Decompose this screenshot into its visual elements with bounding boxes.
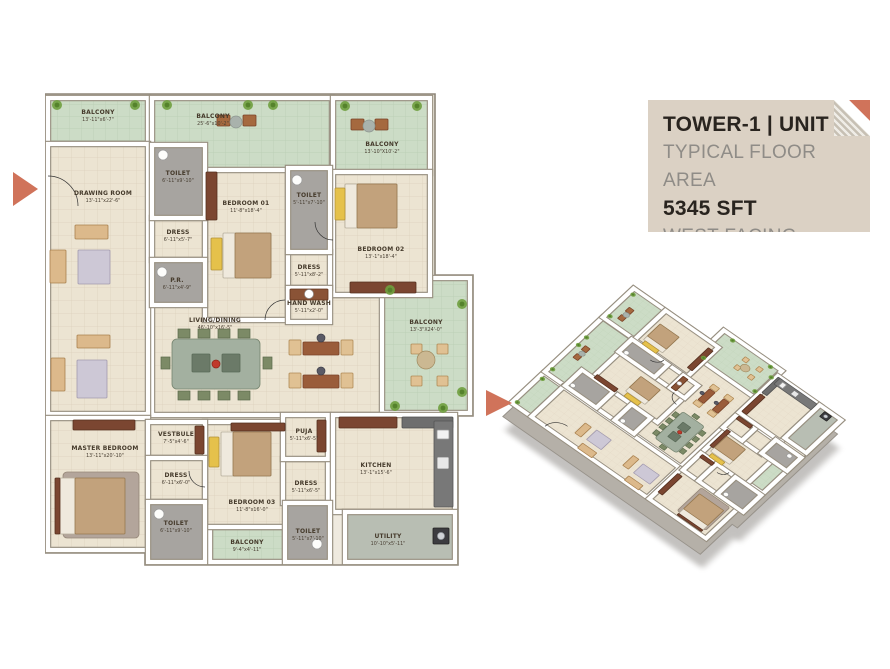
room-label-vestbule: VESTBULE [158,431,194,438]
svg-text:7'-5"x4'-6": 7'-5"x4'-6" [163,439,189,445]
room-label-dress-1: DRESS [166,229,189,236]
panel-subtitle: TYPICAL FLOOR AREA [663,139,870,195]
panel-area: 5345 SFT [663,195,870,223]
floorplan-2d: LIVING/DINING46'-10"x16'-5"BALCONY13'-11… [45,92,475,570]
panel-facing: WEST FACING [663,223,870,251]
room-label-toilet-2: TOILET [297,192,322,199]
room-label-pr: P.R. [170,277,183,284]
room-label-toilet-4: TOILET [296,528,321,535]
room-label-master-bedroom: MASTER BEDROOM [71,445,138,452]
room-label-balcony-5: BALCONY [230,539,264,546]
svg-text:46'-10"x16'-5": 46'-10"x16'-5" [198,325,233,331]
svg-text:5'-11"x7'-10": 5'-11"x7'-10" [292,536,324,542]
room-label-balcony-1: BALCONY [81,109,115,116]
svg-text:5'-11"x2'-0": 5'-11"x2'-0" [295,308,324,314]
svg-text:6'-11"x9'-10": 6'-11"x9'-10" [162,178,194,184]
svg-text:13'-11"x6'-7": 13'-11"x6'-7" [82,117,114,123]
svg-text:9'-4"x4'-11": 9'-4"x4'-11" [233,547,262,553]
svg-text:6'-11"x6'-0": 6'-11"x6'-0" [162,480,191,486]
svg-text:5'-11"x8'-2": 5'-11"x8'-2" [295,272,324,278]
room-label-toilet-1: TOILET [166,170,191,177]
room-label-puja: PUJA [296,428,313,435]
room-label-kitchen: KITCHEN [361,462,392,469]
room-label-living-dining: LIVING/DINING [189,317,241,324]
svg-text:6'-11"x4'-9": 6'-11"x4'-9" [163,285,192,291]
svg-text:13'-10"X10'-2": 13'-10"X10'-2" [364,149,399,155]
svg-text:13'-11"x20'-10": 13'-11"x20'-10" [86,453,124,459]
floorplan-3d-isometric [478,252,878,597]
room-label-drawing-room: DRAWING ROOM [74,190,132,197]
svg-text:10'-10"x5'-11": 10'-10"x5'-11" [371,541,406,547]
room-label-utility: UTILITY [374,533,402,540]
svg-text:13'-3"X24'-0": 13'-3"X24'-0" [410,327,442,333]
room-label-dress-3: DRESS [164,472,187,479]
svg-text:5'-11"x7'-10": 5'-11"x7'-10" [293,200,325,206]
svg-text:5'-11"x6'-5": 5'-11"x6'-5" [290,436,319,442]
svg-text:6'-11"x9'-10": 6'-11"x9'-10" [160,528,192,534]
svg-text:11'-8"x18'-4": 11'-8"x18'-4" [230,208,262,214]
svg-text:11'-8"x16'-0": 11'-8"x16'-0" [236,507,268,513]
room-label-bedroom-03: BEDROOM 03 [229,499,276,506]
room-dress-3 [148,458,205,502]
room-label-dress-4: DRESS [294,480,317,487]
svg-text:13'-11"x22'-6": 13'-11"x22'-6" [86,198,121,204]
svg-text:13'-1"x18'-4": 13'-1"x18'-4" [365,254,397,260]
svg-text:25'-6"x10'-2": 25'-6"x10'-2" [197,121,229,127]
room-label-bedroom-02: BEDROOM 02 [358,246,405,253]
room-label-hand-wash: HAND WASH [287,300,331,307]
svg-text:6'-11"x5'-7": 6'-11"x5'-7" [164,237,193,243]
room-label-dress-2: DRESS [297,264,320,271]
room-label-toilet-3: TOILET [164,520,189,527]
west-entry-arrow-icon [13,172,38,206]
floorplan-page: LIVING/DINING46'-10"x16'-5"BALCONY13'-11… [0,0,890,669]
room-label-bedroom-01: BEDROOM 01 [223,200,270,207]
room-label-balcony-3: BALCONY [365,141,399,148]
room-label-balcony-4: BALCONY [409,319,443,326]
svg-text:13'-1"x15'-6": 13'-1"x15'-6" [360,470,392,476]
svg-text:5'-11"x6'-5": 5'-11"x6'-5" [292,488,321,494]
panel-corner-fold [834,100,870,136]
room-label-balcony-2: BALCONY [196,113,230,120]
